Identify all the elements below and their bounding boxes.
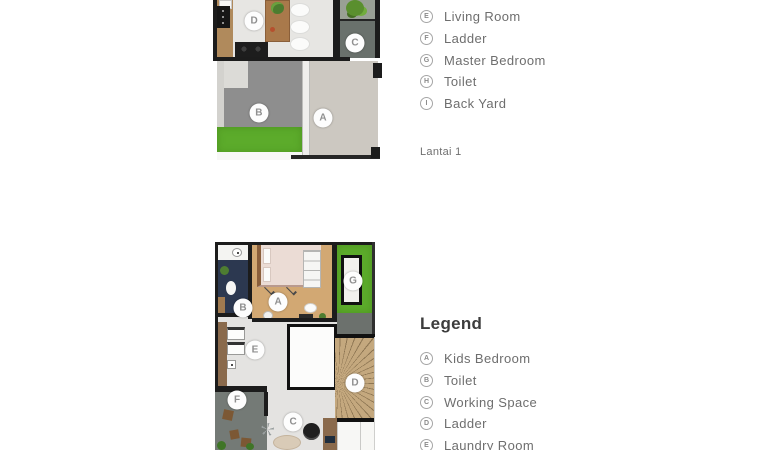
below-stairs-line	[360, 422, 361, 450]
legend-letter-badge: G	[420, 54, 433, 67]
legend-item-h: HToilet	[420, 71, 546, 93]
legend-item-a: AKids Bedroom	[420, 348, 537, 370]
legend-item-label: Back Yard	[444, 96, 506, 111]
washing-machine	[227, 342, 245, 355]
table-decor	[270, 27, 275, 32]
plant-on-table	[271, 2, 284, 14]
pillow	[263, 267, 271, 282]
legend-item-label: Toilet	[444, 74, 477, 89]
legend-item-g: GMaster Bedroom	[420, 49, 546, 71]
wall-interior-right	[333, 0, 340, 58]
room-marker-b: B	[234, 298, 253, 317]
floor-plan-lantai-2: BAGEDFC	[215, 242, 378, 450]
legend-item-label: Working Space	[444, 395, 537, 410]
legend-item-label: Master Bedroom	[444, 53, 546, 68]
bottom-wall-line	[291, 155, 380, 159]
plant	[220, 266, 229, 275]
toilet	[226, 281, 236, 295]
legend-letter-badge: H	[420, 75, 433, 88]
legend-title: Legend	[420, 314, 482, 334]
wall-right-top	[375, 0, 380, 58]
legend-item-c: CWorking Space	[420, 391, 537, 413]
legend-item-label: Kids Bedroom	[444, 351, 530, 366]
balcony-right-wall	[372, 242, 375, 337]
laundry-basket	[227, 360, 236, 369]
chair	[290, 3, 310, 17]
work-desk	[323, 418, 337, 450]
planter-box	[222, 409, 234, 421]
wardrobe-drawers	[303, 250, 321, 288]
paved-edge	[217, 61, 224, 128]
refrigerator	[217, 6, 230, 28]
legend-item-e: ELiving Room	[420, 6, 546, 28]
standing-fan	[261, 423, 274, 436]
void-box	[287, 324, 337, 390]
legend-item-label: Living Room	[444, 9, 521, 24]
chair	[290, 37, 310, 51]
washing-machine	[227, 327, 245, 340]
zone-f-wall	[264, 392, 268, 416]
grass-strip	[217, 127, 302, 153]
floor1-caption: Lantai 1	[420, 146, 462, 158]
legend-item-e: ELaundry Room	[420, 435, 537, 450]
room-marker-c: C	[284, 412, 303, 431]
pillow	[263, 248, 271, 264]
laundry-counter	[218, 322, 227, 386]
sink	[232, 248, 242, 257]
below-stairs-floor	[337, 422, 375, 450]
chair	[290, 20, 310, 34]
legend-item-b: BToilet	[420, 370, 537, 392]
legend-item-label: Ladder	[444, 416, 487, 431]
floor2-legend: AKids BedroomBToiletCWorking SpaceDLadde…	[420, 348, 537, 450]
toilet-shelf	[218, 297, 225, 313]
room-marker-c: C	[345, 34, 364, 53]
legend-item-f: FLadder	[420, 28, 546, 50]
room-marker-d: D	[346, 374, 365, 393]
rug	[273, 435, 301, 450]
plant	[346, 0, 364, 16]
legend-letter-badge: F	[420, 32, 433, 45]
legend-item-label: Ladder	[444, 31, 487, 46]
page: DCBA ELiving RoomFLadderGMaster BedroomH…	[0, 0, 770, 450]
floor1-legend: ELiving RoomFLadderGMaster BedroomHToile…	[420, 6, 546, 114]
plant	[246, 443, 254, 450]
divider-wall	[302, 61, 310, 156]
legend-letter-badge: E	[420, 439, 433, 450]
plant	[217, 441, 226, 450]
desk-chair	[304, 303, 317, 313]
right-edge-line	[374, 337, 375, 450]
legend-item-i: IBack Yard	[420, 93, 546, 115]
legend-letter-badge: C	[420, 396, 433, 409]
office-chair	[303, 423, 320, 440]
right-edge-block	[371, 147, 380, 158]
stove	[235, 42, 268, 57]
room-marker-a: A	[269, 292, 288, 311]
bedroom-bottom-wall	[252, 318, 337, 322]
legend-item-label: Laundry Room	[444, 438, 534, 450]
legend-letter-badge: B	[420, 374, 433, 387]
room-marker-d: D	[245, 11, 264, 30]
room-marker-g: G	[344, 272, 363, 291]
legend-letter-badge: E	[420, 10, 433, 23]
bottom-white-strip	[217, 152, 302, 160]
legend-item-label: Toilet	[444, 373, 477, 388]
legend-letter-badge: D	[420, 417, 433, 430]
laptop	[325, 436, 335, 443]
legend-letter-badge: I	[420, 97, 433, 110]
room-marker-f: F	[228, 391, 247, 410]
room-marker-a: A	[314, 109, 333, 128]
planter-box	[229, 429, 239, 439]
room-marker-e: E	[245, 340, 264, 359]
room-marker-b: B	[249, 103, 268, 122]
ac-unit	[373, 63, 382, 78]
legend-letter-badge: A	[420, 352, 433, 365]
floor-plan-lantai-1: DCBA	[213, 0, 380, 160]
legend-item-d: DLadder	[420, 413, 537, 435]
